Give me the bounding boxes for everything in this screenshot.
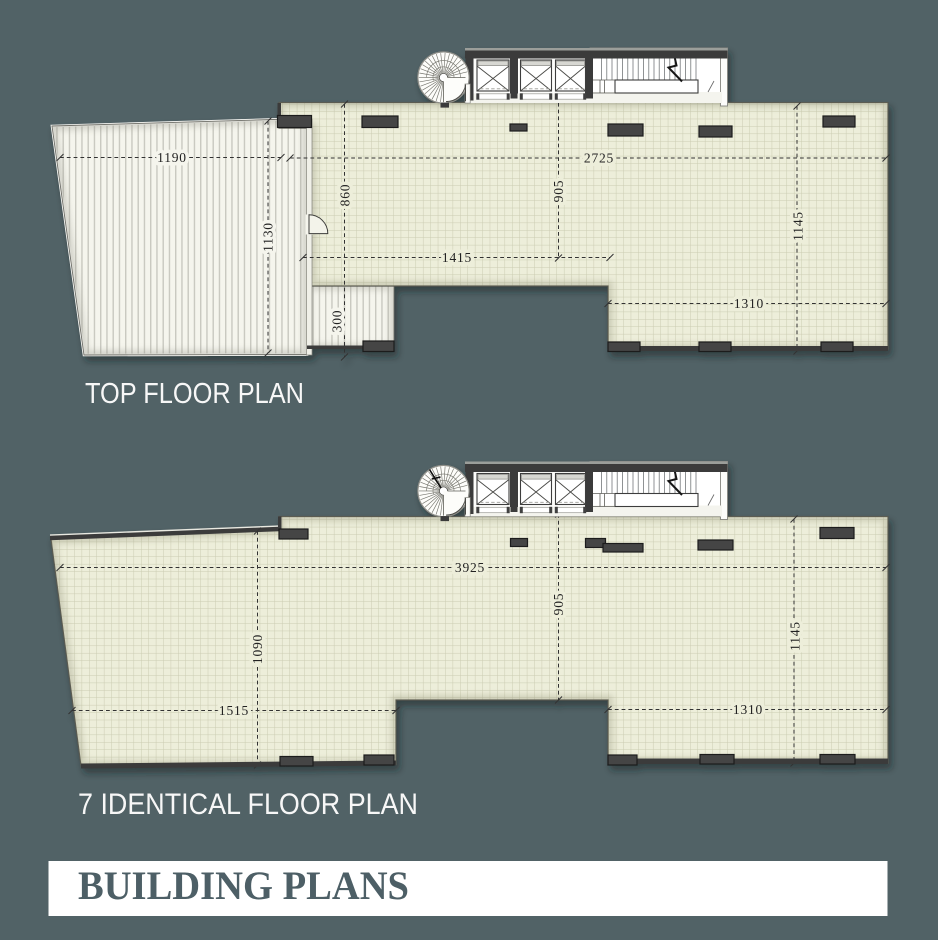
svg-text:BUILDING PLANS: BUILDING PLANS bbox=[78, 863, 409, 908]
svg-text:905: 905 bbox=[551, 180, 566, 203]
svg-text:1415: 1415 bbox=[442, 250, 472, 265]
svg-text:860: 860 bbox=[338, 184, 353, 207]
svg-text:300: 300 bbox=[330, 310, 345, 333]
svg-text:905: 905 bbox=[551, 593, 566, 616]
svg-text:7 IDENTICAL FLOOR PLAN: 7 IDENTICAL FLOOR PLAN bbox=[78, 788, 418, 821]
svg-text:1145: 1145 bbox=[788, 621, 803, 651]
svg-text:1515: 1515 bbox=[219, 703, 249, 718]
svg-text:3925: 3925 bbox=[455, 560, 485, 575]
svg-text:1130: 1130 bbox=[261, 222, 276, 252]
svg-text:1310: 1310 bbox=[734, 296, 764, 311]
svg-text:TOP FLOOR PLAN: TOP FLOOR PLAN bbox=[85, 378, 304, 410]
svg-text:1090: 1090 bbox=[250, 634, 265, 664]
svg-text:1310: 1310 bbox=[733, 702, 763, 717]
svg-text:1145: 1145 bbox=[791, 211, 806, 241]
svg-text:1190: 1190 bbox=[157, 150, 187, 165]
svg-text:2725: 2725 bbox=[584, 151, 614, 166]
